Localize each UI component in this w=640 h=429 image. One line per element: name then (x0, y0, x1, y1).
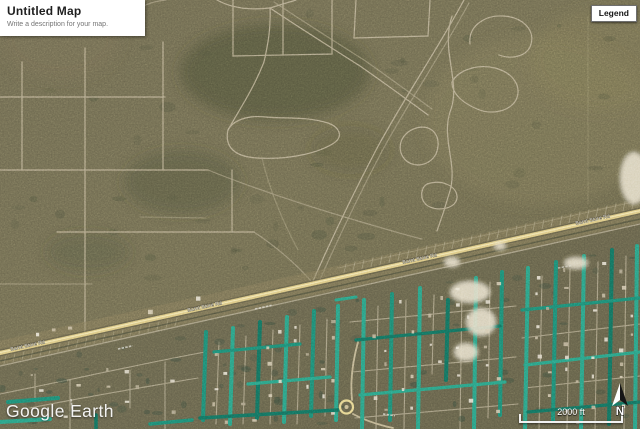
north-arrow-icon (612, 383, 620, 406)
legend-button[interactable]: Legend (591, 5, 637, 22)
grain-overlay (0, 0, 640, 429)
satellite-map[interactable]: Burnt Store Rd Burnt Store Rd Burnt Stor… (0, 0, 640, 429)
north-label: N (616, 404, 625, 416)
map-description-placeholder[interactable]: Write a description for your map. (7, 21, 137, 29)
north-indicator: N (608, 382, 632, 416)
map-title[interactable]: Untitled Map (7, 5, 137, 18)
google-earth-watermark: Google Earth (6, 401, 114, 422)
map-title-panel[interactable]: Untitled Map Write a description for you… (0, 0, 145, 36)
map-viewport[interactable]: Burnt Store Rd Burnt Store Rd Burnt Stor… (0, 0, 640, 429)
